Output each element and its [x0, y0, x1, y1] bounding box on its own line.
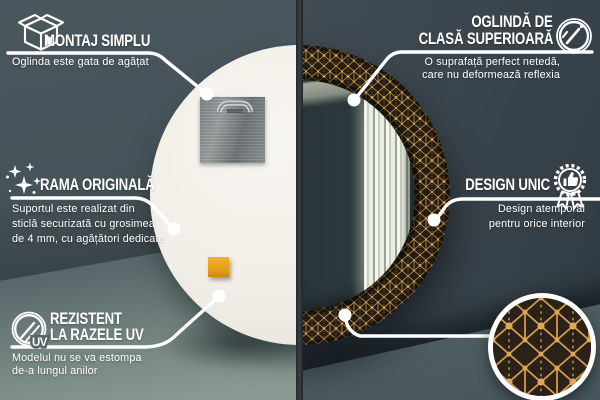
design-desc: Design atemporal pentru orice interior [489, 202, 585, 232]
uv-title-line2: LA RAZELE UV [50, 327, 144, 344]
rama-title: RAMA ORIGINALĂ [40, 177, 155, 194]
rama-desc: Suportul este realizat din sticlă securi… [12, 202, 165, 247]
uv-sun-icon: UV [13, 313, 48, 350]
premium-title-line1: OGLINDĂ DE [472, 14, 553, 31]
uv-icon-label: UV [32, 337, 48, 349]
montaj-title: MONTAJ SIMPLU [44, 33, 150, 50]
sparkle-circle-icon [557, 19, 591, 53]
design-title: DESIGN UNIC [465, 177, 550, 194]
uv-desc: Modelul nu se va estompa de-a lungul ani… [12, 352, 142, 377]
sparkles-icon [6, 163, 41, 195]
magnifier-connector-line [345, 316, 491, 336]
pattern-detail-magnifier [488, 293, 596, 400]
premium-desc: O suprafață perfect netedă, care nu defo… [422, 56, 560, 82]
product-feature-infographic: UV [0, 0, 600, 400]
premium-title-line2: CLASĂ SUPERIOARĂ [418, 31, 553, 48]
montaj-desc: Oglinda este gata de agățat [12, 55, 149, 70]
leader-dots [168, 88, 441, 322]
